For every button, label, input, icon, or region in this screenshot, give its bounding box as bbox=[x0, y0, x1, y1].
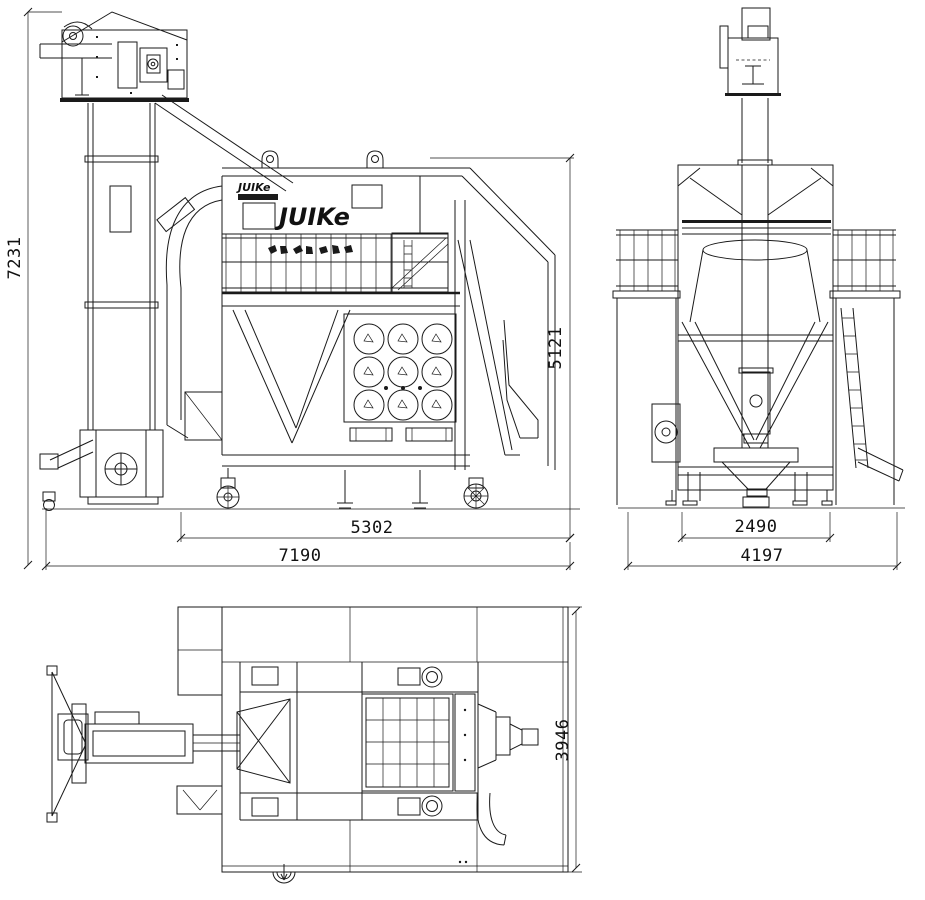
inlet-flare bbox=[237, 699, 290, 783]
front-view: JUIKe JUIKe bbox=[5, 8, 580, 570]
side-body bbox=[678, 165, 833, 490]
front-machine-body: JUIKe JUIKe bbox=[157, 151, 555, 508]
warning-label bbox=[243, 203, 275, 229]
dim-front-body-width: 5302 bbox=[351, 518, 394, 538]
round-bin-rim bbox=[703, 240, 807, 260]
left-platform bbox=[613, 230, 680, 505]
support-feet bbox=[228, 468, 428, 508]
front-circle-grid bbox=[344, 314, 456, 441]
access-ladder bbox=[841, 308, 868, 468]
bottom-outlet bbox=[273, 864, 295, 883]
head-spout bbox=[155, 95, 293, 191]
elevator-column bbox=[88, 103, 155, 430]
logo-small-subtitle-bar bbox=[238, 194, 278, 200]
lifting-lug bbox=[262, 151, 278, 168]
right-hood bbox=[462, 168, 555, 470]
down-duct bbox=[503, 320, 538, 438]
plan-view: 3946 bbox=[47, 607, 582, 883]
head-plate bbox=[720, 26, 728, 68]
plan-outline bbox=[222, 607, 568, 872]
right-frame bbox=[455, 200, 520, 470]
platform-railing bbox=[222, 233, 448, 292]
panel-seams bbox=[222, 607, 568, 872]
dim-front-total-width: 7190 bbox=[279, 546, 322, 566]
dim-front-total-height: 7231 bbox=[5, 237, 25, 280]
side-column bbox=[742, 165, 768, 448]
bottom-fan bbox=[422, 796, 442, 816]
railing-marks bbox=[268, 245, 353, 254]
sieve-deck bbox=[362, 694, 453, 791]
plan-duct bbox=[477, 793, 506, 845]
plan-elevator-block bbox=[178, 607, 222, 695]
discharge-chute bbox=[858, 448, 903, 481]
technical-drawing-page: JUIKe JUIKe bbox=[0, 0, 925, 900]
side-machine-body bbox=[613, 165, 905, 508]
front-dimensions: 7231 5121 5302 7190 bbox=[5, 8, 574, 570]
dim-plan-depth: 3946 bbox=[553, 719, 573, 762]
technical-drawing-canvas: JUIKe JUIKe bbox=[0, 0, 925, 900]
lifting-lug bbox=[367, 151, 383, 168]
dim-front-body-height: 5121 bbox=[546, 327, 566, 370]
column-door bbox=[110, 186, 131, 232]
plan-machine bbox=[237, 662, 538, 883]
side-dimensions: 2490 4197 bbox=[624, 512, 901, 570]
side-view: 2490 4197 bbox=[613, 8, 905, 570]
top-fan bbox=[422, 667, 442, 687]
plan-intake-arm bbox=[47, 666, 240, 822]
dim-side-total-width: 4197 bbox=[741, 546, 784, 566]
chamber-triangles bbox=[364, 334, 441, 408]
head-side-panel bbox=[168, 70, 184, 89]
head-pulley bbox=[63, 26, 83, 46]
hopper-cones bbox=[233, 310, 350, 443]
belt-guard bbox=[64, 22, 92, 29]
warning-label bbox=[352, 185, 382, 208]
front-elevator bbox=[40, 12, 580, 511]
drive-bracket bbox=[40, 44, 112, 95]
dim-side-body-width: 2490 bbox=[735, 517, 778, 537]
right-cone bbox=[478, 704, 496, 768]
head-flange bbox=[725, 93, 781, 96]
support-frame bbox=[52, 672, 85, 816]
duct-label bbox=[157, 198, 195, 232]
logo-large: JUIKe bbox=[275, 203, 350, 231]
elevator-head-roof bbox=[62, 12, 187, 42]
logo-small: JUIKe bbox=[236, 181, 271, 194]
aspiration-duct bbox=[157, 186, 222, 440]
